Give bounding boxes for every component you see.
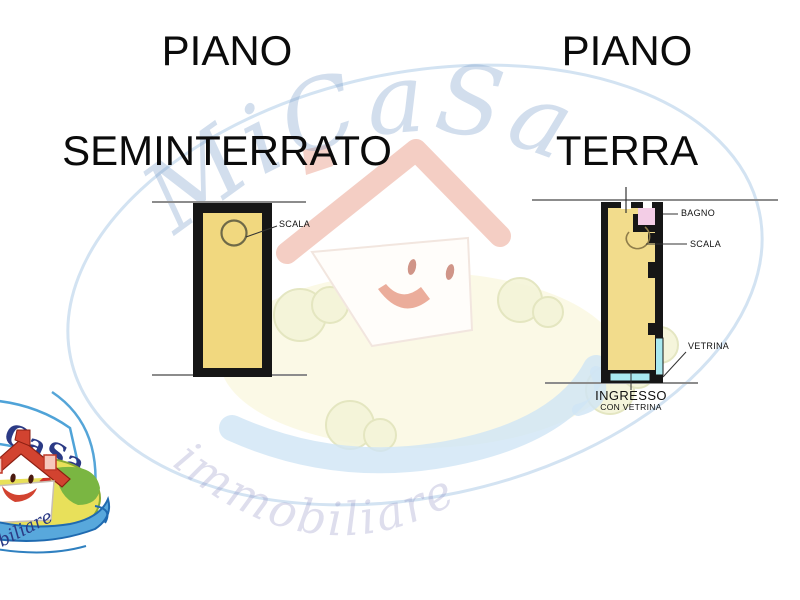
- window-gap-2: [643, 201, 652, 209]
- title-piano-seminterrato: PIANO SEMINTERRATO: [27, 26, 427, 176]
- title-left-line2: SEMINTERRATO: [62, 127, 392, 174]
- label-scala-seminterrato: SCALA: [279, 219, 310, 229]
- plan-terra: [532, 187, 778, 390]
- bagno-wall-bottom: [633, 225, 655, 232]
- vetrina-leader: [663, 352, 686, 377]
- title-piano-terra: PIANO TERRA: [427, 26, 800, 176]
- vetrina-window: [656, 338, 664, 375]
- label-ingresso: INGRESSO: [585, 388, 677, 403]
- label-scala-terra: SCALA: [690, 239, 721, 249]
- wall-pilaster-2: [648, 262, 655, 278]
- title-right-line2: TERRA: [556, 127, 698, 174]
- agency-corner-logo: CaSa obiliare: [0, 378, 130, 600]
- terra-room: [608, 208, 655, 370]
- logo-wave-2: [0, 546, 86, 553]
- logo-window-right: [44, 455, 56, 470]
- floorplan-page: MiCaSa immobiliare: [0, 0, 800, 600]
- seminterrato-room: [203, 213, 262, 368]
- entrance-window: [610, 373, 650, 381]
- label-ingresso-con-vetrina: CON VETRINA: [585, 402, 677, 412]
- wall-pilaster-3: [648, 323, 655, 335]
- label-bagno: BAGNO: [681, 208, 715, 218]
- bagno-room: [638, 208, 655, 225]
- label-vetrina: VETRINA: [688, 341, 729, 351]
- logo-window-left: [0, 458, 2, 473]
- title-left-line1: PIANO: [162, 27, 293, 74]
- title-right-line1: PIANO: [562, 27, 693, 74]
